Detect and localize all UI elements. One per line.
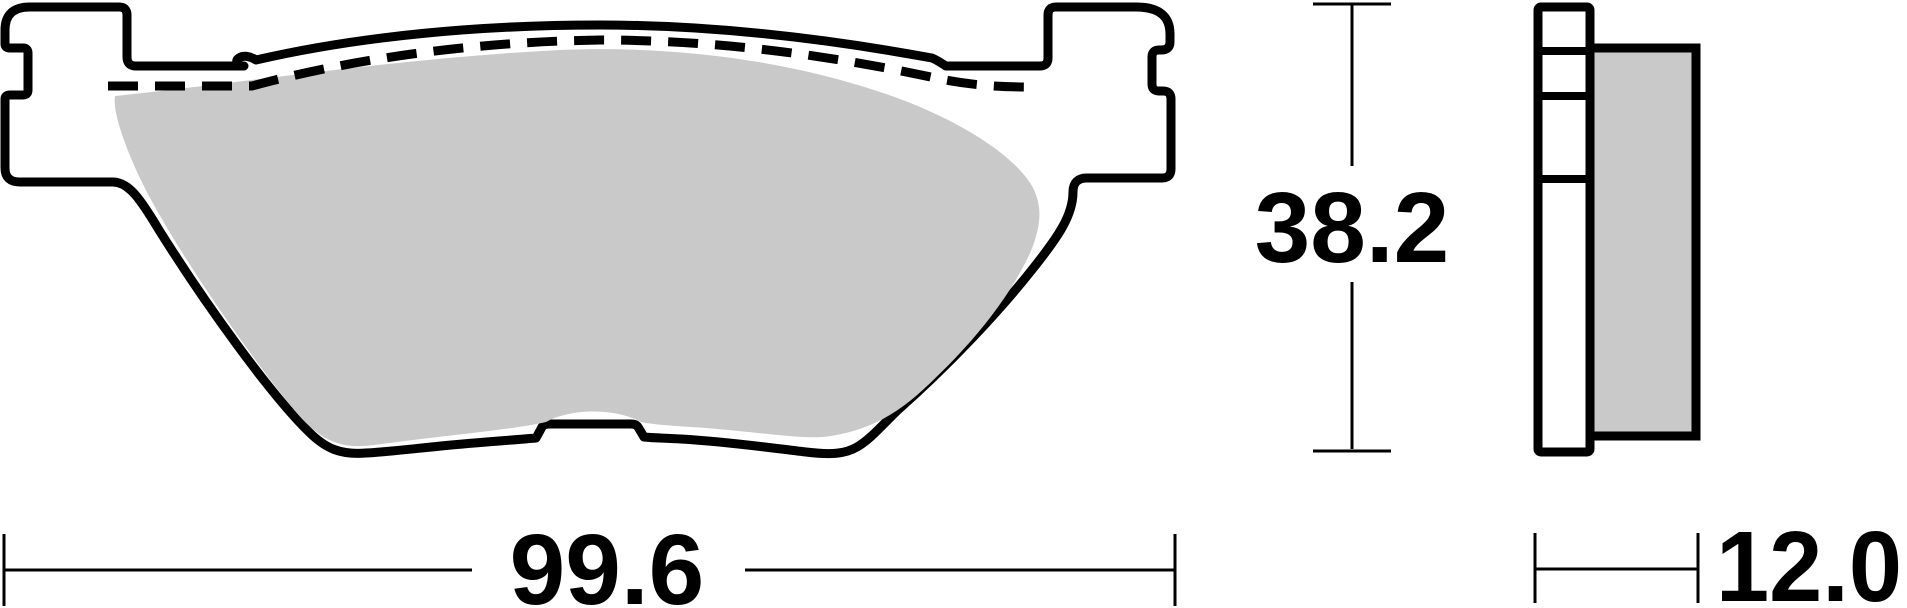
dimension-thickness: 12.0 xyxy=(1535,511,1902,608)
brake-pad-technical-drawing: 99.6 38.2 12.0 xyxy=(0,0,1907,608)
dimension-height: 38.2 xyxy=(1255,4,1450,451)
dimension-width: 99.6 xyxy=(4,514,1175,608)
width-dimension-value: 99.6 xyxy=(510,514,705,608)
drawing-canvas: 99.6 38.2 12.0 xyxy=(0,0,1907,608)
side-view-friction-material xyxy=(1590,48,1696,436)
side-view xyxy=(1538,7,1696,452)
thickness-dimension-value: 12.0 xyxy=(1716,511,1902,608)
side-view-backing-plate xyxy=(1538,7,1590,452)
front-view xyxy=(5,7,1171,454)
friction-material xyxy=(115,49,1040,446)
height-dimension-value: 38.2 xyxy=(1255,172,1450,284)
